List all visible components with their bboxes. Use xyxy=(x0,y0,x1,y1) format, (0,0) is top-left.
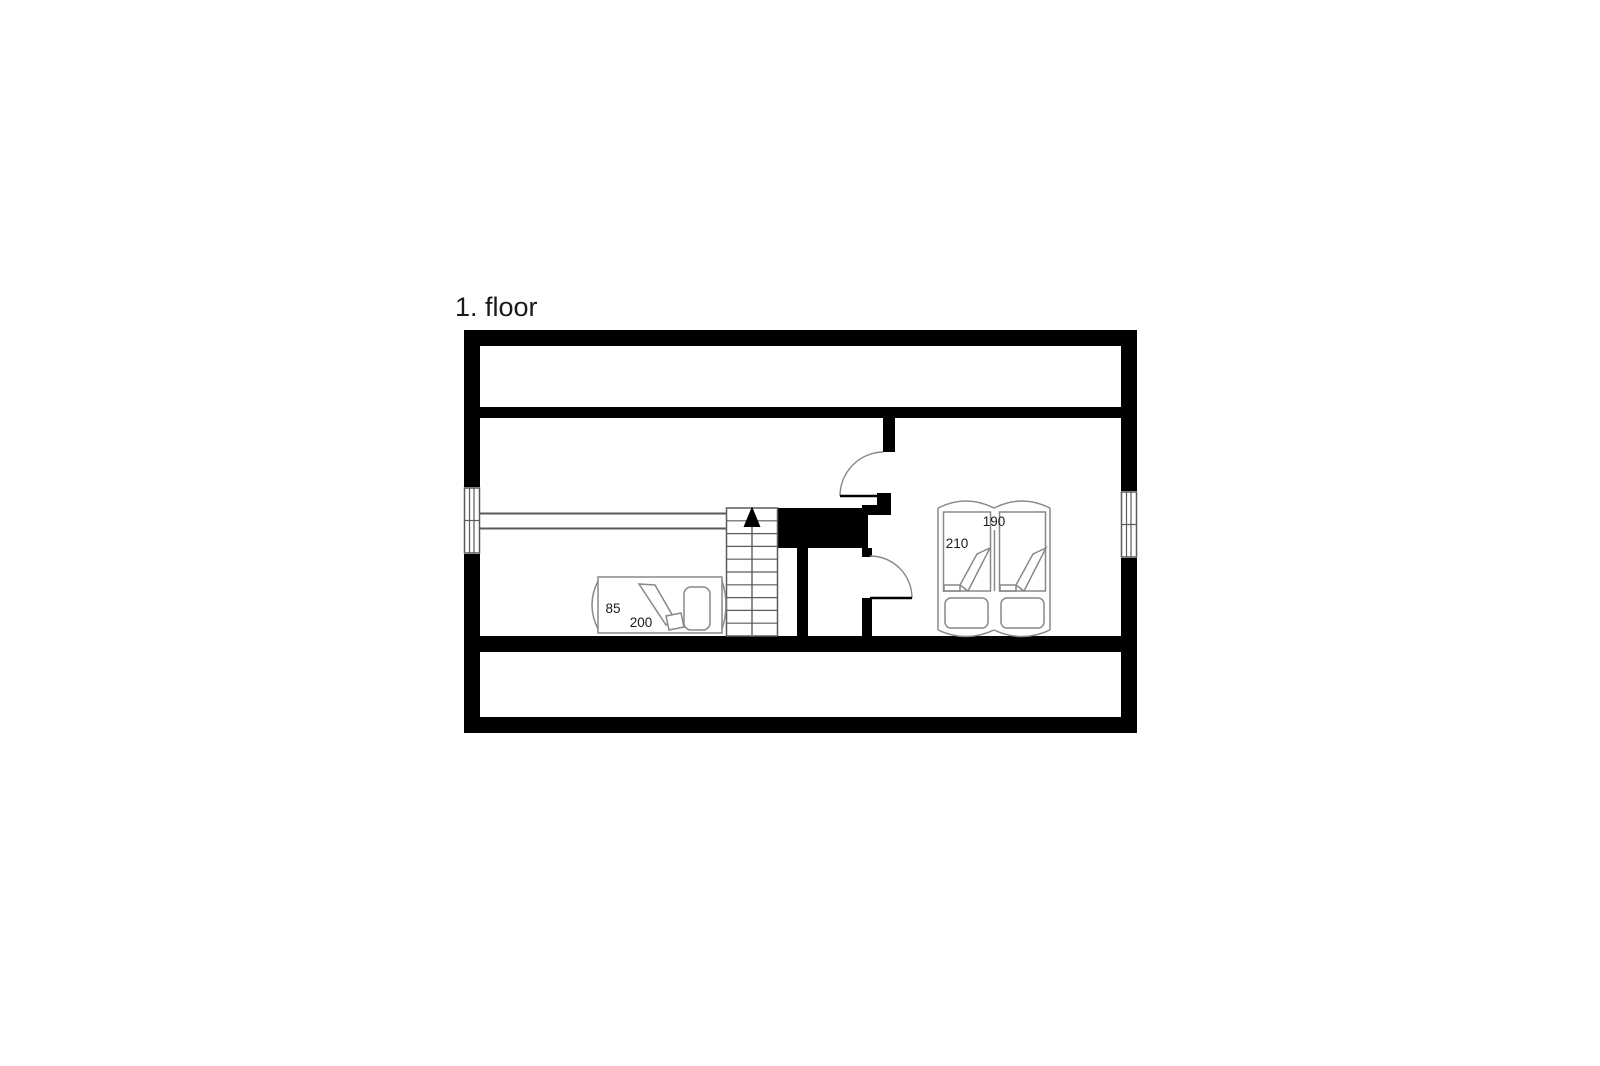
double-bed-blanket-bar-left xyxy=(944,585,960,591)
single-bed-length-label: 200 xyxy=(630,615,653,630)
double-bed-pillow-right xyxy=(1001,598,1044,628)
single-bed-blanket-end xyxy=(666,613,684,630)
double-bed-width-label: 190 xyxy=(983,514,1006,529)
double-bed: 190 210 xyxy=(938,501,1050,637)
window-right xyxy=(1120,491,1138,558)
double-bed-pillow-left xyxy=(945,598,988,628)
wall-bath-lower xyxy=(862,598,872,636)
single-bed-left-cap xyxy=(592,581,598,629)
double-bed-length-label: 210 xyxy=(946,536,969,551)
door-bath xyxy=(870,556,912,598)
floor-plan-page: 1. floor xyxy=(0,0,1600,1066)
staircase xyxy=(727,507,778,637)
single-bed-width-label: 85 xyxy=(605,601,620,616)
wall-outer-top xyxy=(464,330,1137,346)
door-bedroom xyxy=(840,452,883,496)
single-bed: 85 200 xyxy=(592,577,726,633)
wall-poche-block xyxy=(778,508,868,548)
double-bed-duvet-bottom-right xyxy=(994,630,1050,637)
double-bed-duvet-top-left xyxy=(938,501,994,508)
single-bed-pillow xyxy=(684,587,710,630)
double-bed-duvet-bottom-left xyxy=(938,630,994,637)
door-bath-swing-arc xyxy=(870,556,912,598)
double-bed-blanket-fold-right xyxy=(1016,548,1046,591)
window-left xyxy=(463,487,481,554)
stairs-up-arrow-icon xyxy=(744,507,761,528)
wall-divider-top xyxy=(480,407,1121,418)
floor-plan-canvas: 1. floor xyxy=(0,0,1600,1066)
page-title: 1. floor xyxy=(455,292,538,322)
double-bed-duvet-top-right xyxy=(994,501,1050,508)
wall-bedroom-upper xyxy=(883,418,895,452)
door-bedroom-swing-arc xyxy=(840,452,883,496)
wall-outer-bottom xyxy=(464,717,1137,733)
wall-divider-bottom xyxy=(480,636,1121,652)
double-bed-blanket-bar-right xyxy=(1000,585,1016,591)
wall-hall-left xyxy=(797,548,808,636)
double-bed-blanket-fold-left xyxy=(960,548,990,591)
knee-wall xyxy=(480,514,727,529)
